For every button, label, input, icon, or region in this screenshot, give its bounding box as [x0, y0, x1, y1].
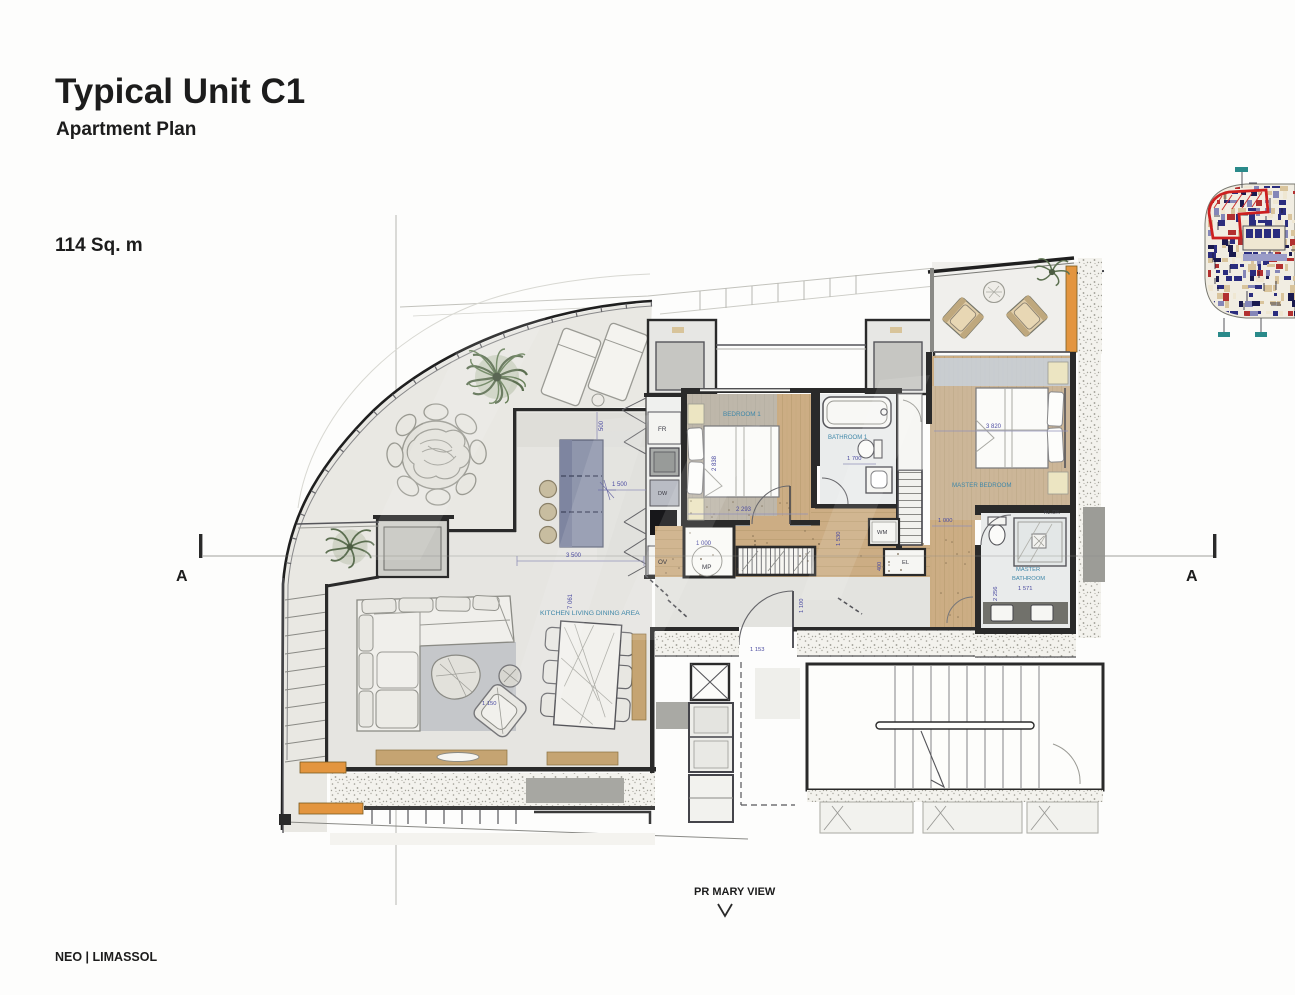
- svg-text:A: A: [1186, 568, 1198, 585]
- svg-text:Typical Unit C1: Typical Unit C1: [55, 72, 305, 111]
- svg-text:1 000: 1 000: [938, 518, 953, 524]
- svg-text:WM: WM: [877, 530, 887, 536]
- svg-text:EL: EL: [902, 560, 910, 566]
- svg-text:1 530: 1 530: [836, 531, 842, 546]
- svg-text:MASTER BEDROOM: MASTER BEDROOM: [952, 482, 1011, 489]
- svg-text:114 Sq. m: 114 Sq. m: [55, 235, 143, 256]
- svg-text:BATHROOM: BATHROOM: [1012, 576, 1045, 582]
- svg-text:DW: DW: [658, 491, 668, 497]
- svg-text:NEO | LIMASSOL: NEO | LIMASSOL: [55, 950, 157, 964]
- svg-text:3 820: 3 820: [986, 424, 1002, 430]
- svg-text:500: 500: [599, 420, 605, 431]
- svg-text:400: 400: [877, 562, 883, 571]
- svg-text:A: A: [176, 568, 188, 585]
- svg-text:KL.DK: KL.DK: [1044, 510, 1060, 516]
- svg-text:1 571: 1 571: [1018, 586, 1033, 592]
- svg-text:1 150: 1 150: [482, 701, 497, 707]
- svg-text:2 293: 2 293: [736, 507, 752, 513]
- svg-text:OV: OV: [658, 559, 668, 566]
- svg-text:KITCHEN LIVING DINING AREA: KITCHEN LIVING DINING AREA: [540, 610, 640, 617]
- svg-text:1 500: 1 500: [612, 482, 628, 488]
- svg-text:2 838: 2 838: [712, 455, 718, 471]
- svg-text:7 061: 7 061: [568, 593, 574, 609]
- svg-text:1 153: 1 153: [750, 647, 765, 653]
- svg-text:Apartment Plan: Apartment Plan: [56, 119, 196, 140]
- svg-text:FR: FR: [658, 426, 667, 433]
- svg-text:MASTER: MASTER: [1016, 567, 1040, 573]
- svg-text:1 100: 1 100: [799, 598, 805, 613]
- svg-text:PR MARY VIEW: PR MARY VIEW: [694, 886, 776, 898]
- svg-text:1 700: 1 700: [847, 456, 862, 462]
- svg-text:2 256: 2 256: [993, 586, 999, 601]
- svg-text:BATHROOM 1: BATHROOM 1: [828, 435, 868, 441]
- svg-text:3 500: 3 500: [566, 553, 582, 559]
- svg-text:MP: MP: [702, 564, 711, 571]
- svg-text:BEDROOM 1: BEDROOM 1: [723, 411, 761, 418]
